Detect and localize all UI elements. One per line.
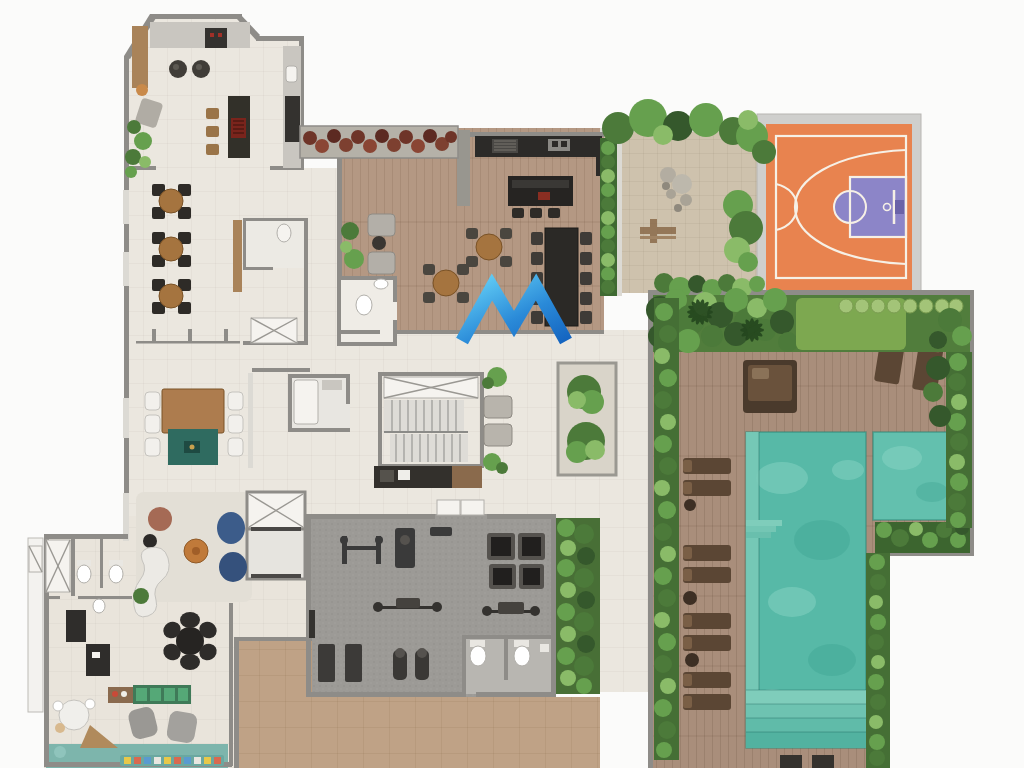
deck-side-table <box>372 236 386 250</box>
hoop-support <box>895 200 904 214</box>
floor-plan-image <box>0 0 1024 768</box>
deck-mat-2 <box>812 755 834 768</box>
deck-armchair-2 <box>368 252 395 274</box>
deck-bath-toilet <box>356 295 372 315</box>
pouf-blue-2 <box>219 552 247 582</box>
dining-wc-floor <box>243 218 308 268</box>
bean-bag-2 <box>166 710 199 744</box>
storage-mat <box>294 380 318 424</box>
pouf-blue-1 <box>217 512 245 544</box>
floor-plan-svg <box>0 0 1024 768</box>
pools <box>746 432 958 748</box>
deck-mat-1 <box>780 755 802 768</box>
elevator-bank <box>247 492 305 579</box>
central-planter <box>558 363 616 475</box>
deck-armchair-1 <box>368 214 395 236</box>
sideboard <box>233 220 242 292</box>
pool-right-hedge <box>866 553 890 768</box>
deck-bath-sink <box>374 279 388 289</box>
red-planter <box>300 126 458 158</box>
pouf-rust <box>148 507 172 531</box>
garden-left-hedge <box>600 138 617 296</box>
gym-hedge <box>556 518 600 694</box>
pool-left-hedge <box>654 298 679 760</box>
pool-top-garden <box>646 288 972 353</box>
basketball-court <box>757 114 921 299</box>
spa-pool <box>873 432 958 520</box>
communal-table <box>162 389 224 433</box>
pouf-dark <box>143 534 157 548</box>
east-walk-floor <box>598 520 652 692</box>
